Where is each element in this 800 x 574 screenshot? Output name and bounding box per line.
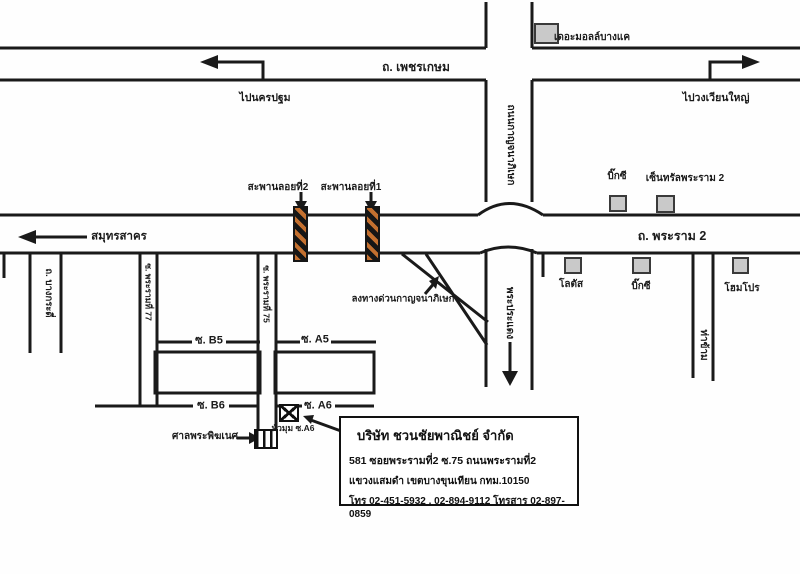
pedestrian-bridge-1 bbox=[365, 206, 380, 262]
corner-a6-label: หัวมุม ซ.A6 bbox=[272, 424, 315, 433]
rama2-road-label: ถ. พระราม 2 bbox=[638, 230, 707, 243]
soi-a5-label: ซ. A5 bbox=[301, 335, 329, 346]
soi-b5-label: ซ. B5 bbox=[195, 336, 223, 347]
to-samut-sakhon-label: สมุทรสาคร bbox=[91, 231, 147, 243]
central-rama2-building bbox=[656, 195, 675, 213]
expressway-exit-label: ลงทางด่วนกาญจนาภิเษก bbox=[352, 294, 455, 304]
big-c-south-label: บิ๊กซี bbox=[631, 282, 650, 292]
homepro-label: โฮมโปร bbox=[724, 284, 759, 294]
company-info-box: บริษัท ชวนชัยพาณิชย์ จำกัด 581 ซอยพระราม… bbox=[339, 416, 579, 506]
company-phone-line: โทร 02-451-5932 , 02-894-9112 โทรสาร 02-… bbox=[349, 494, 569, 520]
soi-rama2-77-label: ซ. พระรามที่ 77 bbox=[144, 263, 153, 321]
the-mall-label: เดอะมอลล์บางแค bbox=[554, 33, 630, 43]
lotus-label: โลตัส bbox=[559, 280, 583, 290]
arrow-east-phetkasem-shaft bbox=[710, 62, 742, 80]
big-c-south-building bbox=[632, 257, 651, 274]
company-location-marker bbox=[279, 404, 299, 422]
phra-pradaeng-label: พระประแดง bbox=[504, 287, 514, 339]
arrow-west-phetkasem-shaft bbox=[218, 62, 263, 80]
phetkasem-road-label: ถ. เพชรเกษม bbox=[382, 61, 450, 73]
arrow-heads bbox=[18, 55, 760, 444]
bang-kradi-road-label: ถ. บางกระดี่ bbox=[43, 268, 53, 317]
bridge-2-label: สะพานลอยที่2 bbox=[248, 183, 309, 193]
block-rectangles bbox=[155, 352, 374, 393]
soi-a6-label: ซ. A6 bbox=[304, 401, 332, 412]
lotus-building bbox=[564, 257, 582, 274]
arrow-west-rama2-head bbox=[18, 230, 36, 244]
map-canvas: ถ. เพชรเกษม ถ. พระราม 2 ไปนครปฐม ไปวงเวี… bbox=[0, 0, 800, 574]
tha-kham-road-label: ท่าข้าม bbox=[698, 329, 708, 360]
arrow-south-kanchanaphisek-head bbox=[502, 371, 518, 386]
interchange-humps bbox=[478, 204, 543, 254]
bridge-1-label: สะพานลอยที่1 bbox=[321, 183, 382, 193]
soi-b6-label: ซ. B6 bbox=[197, 401, 225, 412]
pedestrian-bridge-2 bbox=[293, 206, 308, 262]
homepro-building bbox=[732, 257, 749, 274]
big-c-north-label: บิ๊กซี bbox=[607, 172, 626, 182]
company-name: บริษัท ชวนชัยพาณิชย์ จำกัด bbox=[357, 425, 569, 446]
arrow-west-phetkasem-head bbox=[200, 55, 218, 69]
bridge-pointer-shafts bbox=[301, 192, 371, 203]
big-c-north-building bbox=[609, 195, 627, 212]
arrow-east-phetkasem-head bbox=[742, 55, 760, 69]
soi-rama2-75-label: ซ. พระรามที่ 75 bbox=[262, 265, 271, 323]
company-address-line2: แขวงแสมดำ เขตบางขุนเทียน กทม.10150 bbox=[349, 474, 569, 489]
to-wongwian-yai-label: ไปวงเวียนใหญ่ bbox=[683, 93, 750, 104]
central-rama2-label: เซ็นทรัลพระราม 2 bbox=[646, 174, 724, 184]
shrine-label: ศาลพระพิฆเนศ bbox=[172, 432, 238, 442]
to-nakhon-pathom-label: ไปนครปฐม bbox=[239, 93, 290, 104]
company-address-line1: 581 ซอยพระรามที่2 ซ.75 ถนนพระรามที่2 bbox=[349, 452, 569, 469]
kanchanaphisek-road-label: ถนนกาญจนาภิเษก bbox=[505, 105, 515, 186]
